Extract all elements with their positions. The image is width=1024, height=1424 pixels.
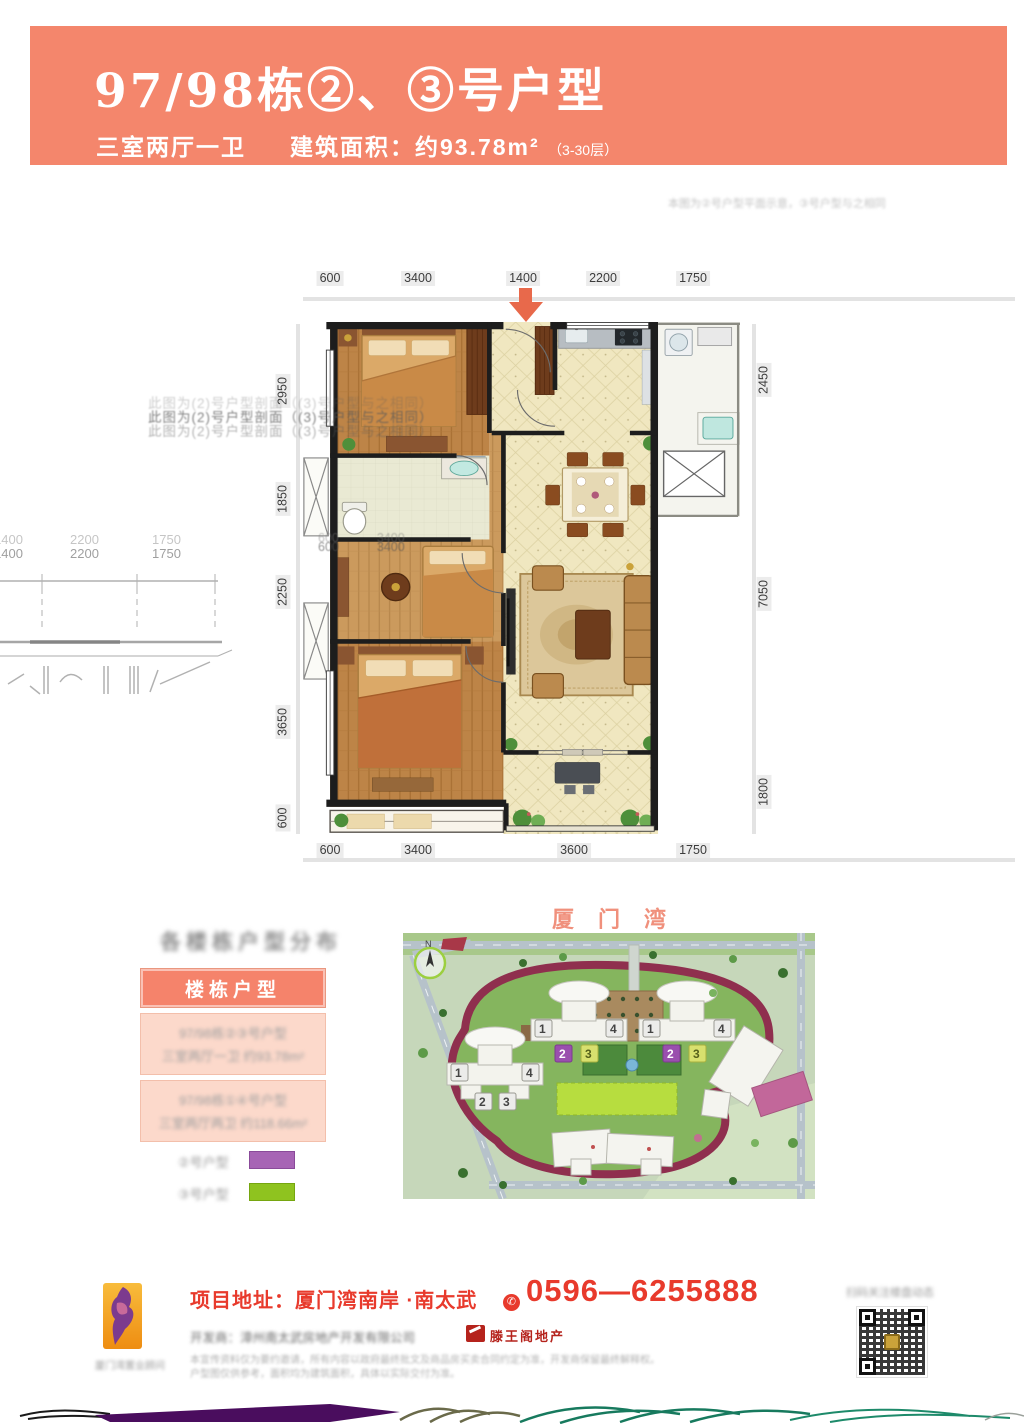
entry-arrow-icon [509,302,543,322]
table-row: 97/98栋①④号户型 三室两厅两卫 约118.66m² [140,1080,326,1142]
dim-ruler-right [752,324,756,834]
svg-text:3: 3 [693,1047,700,1061]
svg-text:4: 4 [610,1022,617,1036]
site-map: 1 4 2 3 1 4 2 3 [403,933,815,1199]
fine-print-blurred: 户型图仅供参考，面积均为建筑面积，具体以实际交付为准。 [190,1365,490,1380]
svg-text:1: 1 [539,1022,546,1036]
developer-line-blurred: 开发商：漳州南太武房地产开发有限公司 [190,1327,446,1346]
svg-text:1: 1 [455,1066,462,1080]
qr-center-logo [884,1334,900,1350]
decorative-leaf-strip [0,1402,1024,1424]
phone-icon: ✆ [503,1294,520,1311]
top-disclaimer-blurred: 本图为②号户型平面示意，③号户型与之相同 [668,195,953,211]
dim-ruler-top [303,297,1015,301]
ghost-print-text: 此图为(2)号户型剖面（(3)号户型与之相同） [148,420,508,440]
svg-text:2200: 2200 [70,546,99,561]
legend-label: ③号户型 [178,1184,229,1203]
svg-text:3: 3 [503,1095,510,1109]
qr-finder-icon [859,1358,876,1375]
svg-text:N: N [425,939,432,949]
svg-text:2: 2 [559,1047,566,1061]
dim-label: 600 [276,805,291,832]
legend-swatch-unit2 [249,1151,295,1169]
svg-text:3: 3 [585,1047,592,1061]
dim-label: 2200 [586,271,620,286]
table-row-line: 97/98栋②③号户型 [179,1023,287,1042]
svg-text:2: 2 [667,1047,674,1061]
table-row-line: 97/98栋①④号户型 [179,1090,287,1109]
entry-furniture [535,327,554,395]
legend-label: ②号户型 [178,1152,229,1171]
svg-text:4: 4 [526,1066,533,1080]
svg-text:1750: 1750 [152,546,181,561]
dim-label: 1400 [506,271,540,286]
entry-arrow-icon [519,288,532,303]
dim-label: 2450 [757,363,772,397]
dim-label: 600 [317,843,344,858]
svg-text:4: 4 [718,1022,725,1036]
dim-label: 600 [317,271,344,286]
page-title: 97/98栋②、③号户型 [94,52,607,121]
dim-label: 3650 [276,705,291,739]
brand-name: 滕王阁地产 [490,1326,565,1345]
dim-label: 2250 [276,575,291,609]
qr-caption-blurred: 扫码关注楼盘动态 [840,1284,940,1300]
building-type-table: 楼栋户型 97/98栋②③号户型 三室两厅一卫 约93.78m² 97/98栋①… [140,968,326,1142]
building-list-title-blurred: 各楼栋户型分布 [160,926,342,956]
brand-seal-icon [466,1325,485,1342]
logo-caption-blurred: 厦门湾置业顾问 [84,1357,176,1372]
project-logo [103,1283,142,1349]
dim-label: 1750 [676,843,710,858]
dim-ruler-bottom [303,858,1015,862]
svg-text:1400: 1400 [0,546,23,561]
ac-platforms [304,458,328,679]
unit-layout-text: 三室两厅一卫 [96,134,246,160]
site-map-title: 厦门湾 [403,902,815,934]
table-row: 97/98栋②③号户型 三室两厅一卫 约93.78m² [140,1013,326,1075]
qr-finder-icon [859,1309,876,1326]
page-subtitle: 三室两厅一卫建筑面积：约93.78m² （3-30层） [96,128,618,162]
legend-swatch-unit3 [249,1183,295,1201]
table-row-line: 三室两厅两卫 约118.66m² [159,1113,308,1132]
dim-label: 7050 [757,577,772,611]
qr-finder-icon [908,1309,925,1326]
ghost-dim-fragment: 1400 2200 1750 1400 2200 1750 [0,534,240,706]
table-header: 楼栋户型 [140,968,326,1008]
area-text: 建筑面积：约93.78m² [290,134,540,160]
dim-label: 3600 [557,843,591,858]
dim-label: 3400 [401,271,435,286]
project-address: 项目地址：厦门湾南岸 ·南太武 [190,1284,477,1313]
flyer-page: 97/98栋②、③号户型 三室两厅一卫建筑面积：约93.78m² （3-30层）… [0,0,1024,1424]
fine-print-blurred: 本宣传资料仅为要约邀请，所有内容以政府最终批文及商品房买卖合同约定为准，开发商保… [190,1351,702,1366]
dim-label: 1800 [757,775,772,809]
header-banner: 97/98栋②、③号户型 三室两厅一卫建筑面积：约93.78m² （3-30层） [30,26,1007,165]
dim-label: 1850 [276,482,291,516]
svg-text:2: 2 [479,1095,486,1109]
phone-number: 0596—6255888 [526,1273,759,1309]
qr-code [856,1306,928,1378]
svg-text:1: 1 [647,1022,654,1036]
dim-label: 3400 [401,843,435,858]
table-row-line: 三室两厅一卫 约93.78m² [162,1046,304,1065]
ghost-dim-labels: 6003400 [318,540,443,554]
floors-text: （3-30层） [548,142,618,158]
dim-label: 1750 [676,271,710,286]
